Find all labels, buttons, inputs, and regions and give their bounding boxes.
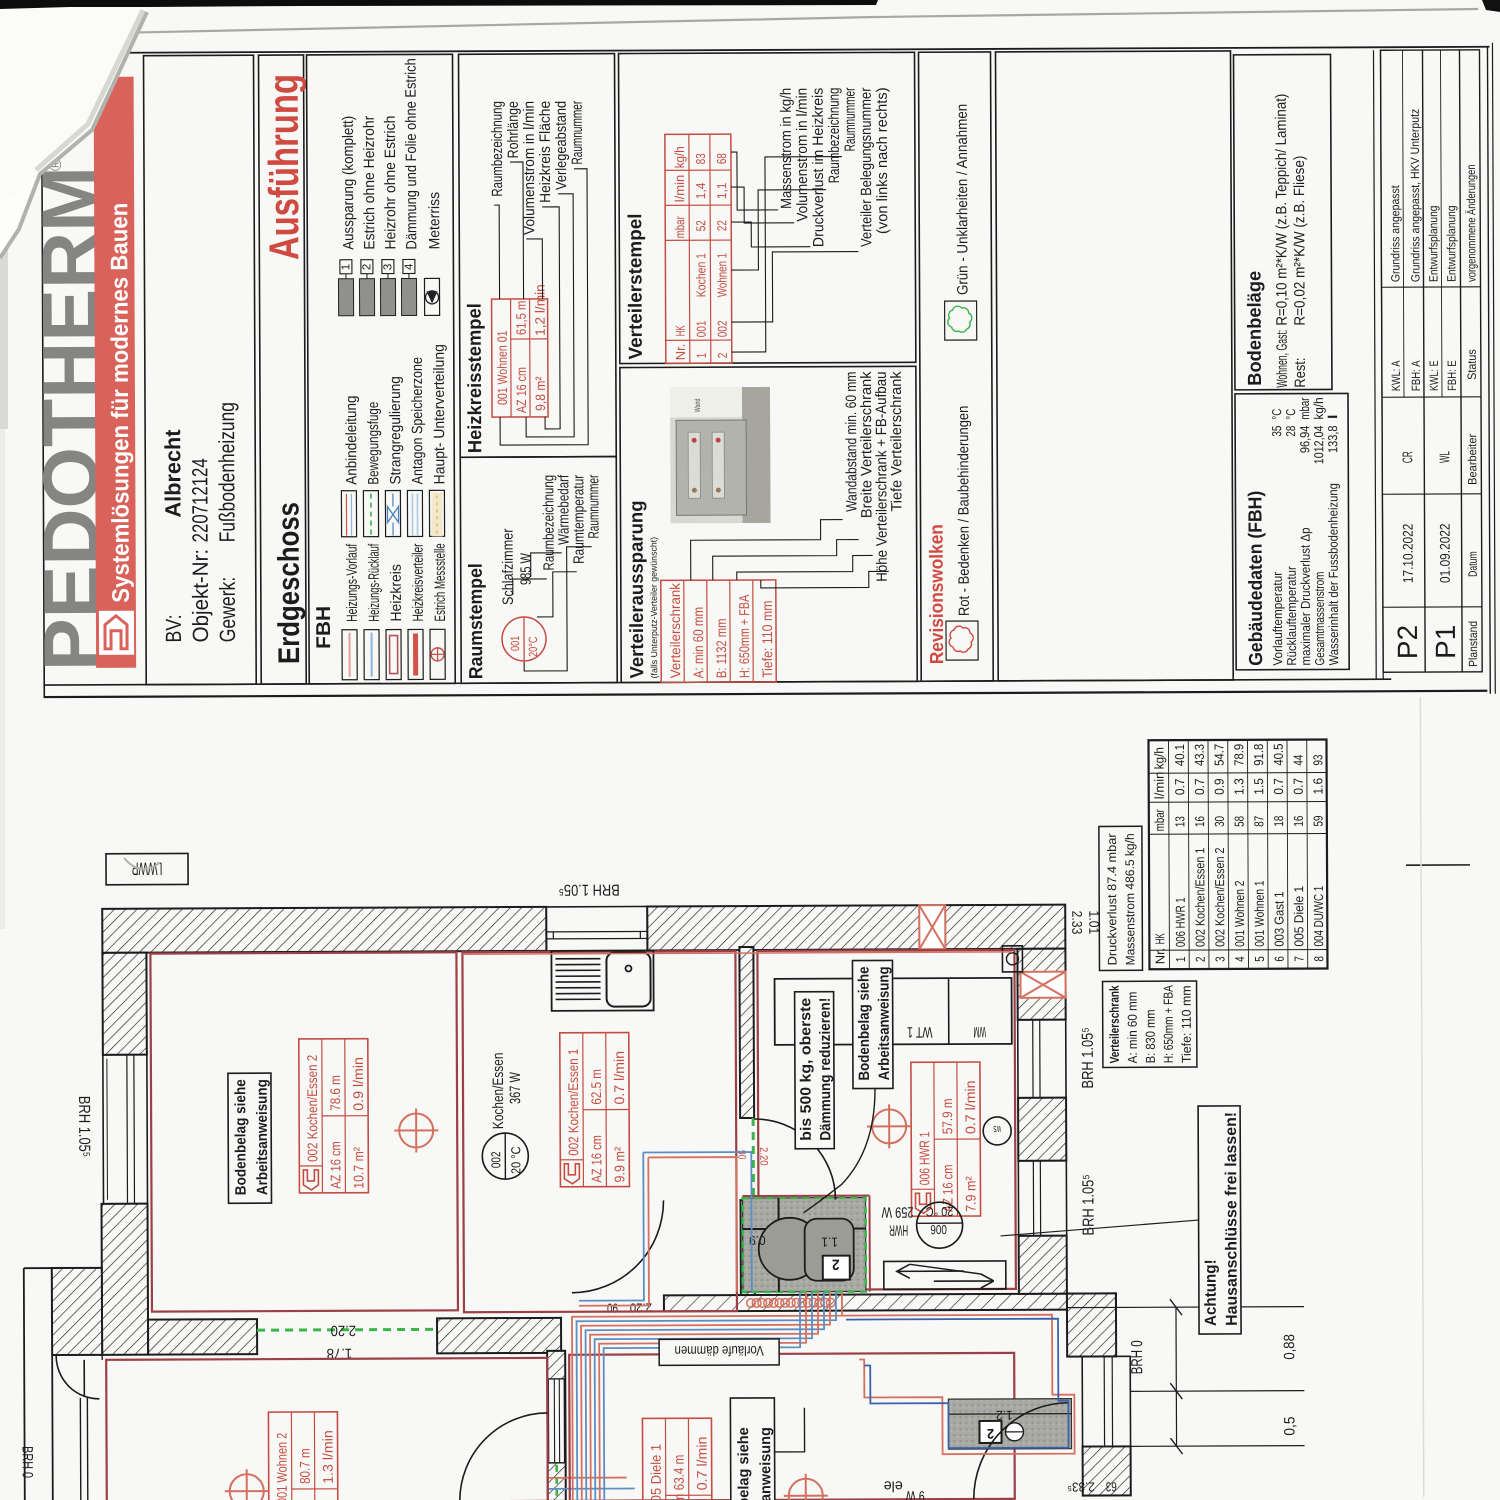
svg-text:28: 28 [1283,426,1298,437]
svg-text:003 Gast 1: 003 Gast 1 [1271,891,1286,946]
svg-text:985 W: 985 W [518,552,535,585]
svg-text:2: 2 [987,1426,994,1442]
svg-text:Meterriss: Meterriss [426,192,443,249]
svg-text:Ausführung: Ausführung [260,74,308,260]
svg-text:16: 16 [1291,816,1306,827]
svg-text:Heizkreis: Heizkreis [388,564,405,621]
svg-text:7.9 m²: 7.9 m² [962,1176,978,1212]
svg-text:001 Wohnen 1: 001 Wohnen 1 [1252,880,1267,946]
svg-text:Anbindeleitung: Anbindeleitung [343,396,360,485]
svg-text:5: 5 [1252,956,1267,962]
svg-text:1: 1 [1173,957,1188,963]
svg-text:maximaler Druckverlust Δp: maximaler Druckverlust Δp [1298,527,1314,665]
svg-text:3: 3 [382,264,394,270]
svg-text:18: 18 [1271,816,1286,827]
svg-text:Arbeitsanweisung: Arbeitsanweisung [254,1079,272,1195]
svg-text:R=0,10 m²*K/W (z.B. Teppich/ L: R=0,10 m²*K/W (z.B. Teppich/ Laminat) [1273,94,1291,326]
svg-text:A: min 60 mm: A: min 60 mm [690,607,706,678]
svg-text:Heizungs-Rücklauf: Heizungs-Rücklauf [366,543,383,622]
svg-text:Vorläufe dämmen: Vorläufe dämmen [675,1343,764,1359]
svg-text:Raumnummer: Raumnummer [569,101,586,165]
svg-text:4: 4 [1232,956,1247,962]
svg-text:Dämmung reduzieren!: Dämmung reduzieren! [817,998,835,1141]
svg-text:Raumnummer: Raumnummer [842,88,859,152]
svg-text:Aussparung (komplett): Aussparung (komplett) [340,116,358,250]
svg-text:80.7 m: 80.7 m [297,1448,313,1484]
svg-text:Heizungs-Vorlauf: Heizungs-Vorlauf [344,543,361,622]
svg-text:(falls Unterputz-Verteiler gew: (falls Unterputz-Verteiler gewünscht) [649,537,660,679]
svg-text:7: 7 [1291,956,1306,962]
svg-text:Albrecht: Albrecht [160,429,185,518]
svg-text:002 Kochen/Essen 1: 002 Kochen/Essen 1 [565,1048,581,1155]
svg-text:Verteilerstempel: Verteilerstempel [625,213,647,359]
svg-text:Schlafzimmer: Schlafzimmer [500,529,517,606]
svg-text:259 W: 259 W [881,1203,914,1220]
svg-text:8: 8 [1311,956,1326,962]
svg-text:62.5 m: 62.5 m [588,1069,604,1105]
svg-text:78.6 m: 78.6 m [327,1075,343,1111]
svg-text:Raumstempel: Raumstempel [466,563,488,679]
svg-text:2.33⁵: 2.33⁵ [1067,1480,1095,1495]
svg-text:43.3: 43.3 [1192,744,1207,766]
svg-text:Heizkreis Fläche: Heizkreis Fläche [537,101,554,203]
svg-text:006 HWR 1: 006 HWR 1 [916,1131,932,1185]
svg-text:B: 830 mm: B: 830 mm [1143,1009,1158,1063]
svg-text:20 °C: 20 °C [508,1146,523,1174]
svg-text:Arbeitsanweisung: Arbeitsanweisung [757,1427,775,1500]
svg-text:006: 006 [930,1222,947,1237]
svg-text:0.7 l/min: 0.7 l/min [611,1051,627,1105]
svg-text:1,4: 1,4 [693,183,708,200]
svg-text:220712124: 220712124 [187,458,212,542]
svg-text:001 Wohnen 2: 001 Wohnen 2 [1232,881,1247,947]
svg-text:Fußbodenheizung: Fußbodenheizung [214,402,240,542]
svg-text:2.33: 2.33 [1069,911,1085,935]
svg-text:1.3 l/min: 1.3 l/min [319,1430,335,1484]
svg-text:002: 002 [715,320,730,337]
svg-text:1.5: 1.5 [1251,778,1266,795]
svg-text:Heizkreisverteiler: Heizkreisverteiler [410,543,427,621]
svg-text:BV:: BV: [161,614,186,642]
svg-text:Entwurfsplanung: Entwurfsplanung [1426,205,1440,282]
svg-text:Gewerk:: Gewerk: [215,577,240,643]
svg-text:Wohnen 1: Wohnen 1 [714,253,729,297]
svg-text:mbar: mbar [1152,809,1167,832]
svg-text:001: 001 [694,321,709,338]
svg-text:CR: CR [1399,451,1415,463]
svg-text:20 °C: 20 °C [926,1204,954,1219]
svg-text:68: 68 [714,153,729,164]
svg-text:vorgenommene Änderungen: vorgenommene Änderungen [1464,165,1479,282]
svg-text:1012,04: 1012,04 [1311,425,1326,464]
svg-text:Objekt-Nr:: Objekt-Nr: [188,549,213,643]
svg-text:AZ 16 cm: AZ 16 cm [327,1141,343,1189]
svg-text:Status: Status [1465,349,1479,380]
svg-text:1: 1 [340,264,352,270]
svg-text:WL: WL [1436,451,1452,463]
svg-text:FBH: E: FBH: E [1445,360,1459,391]
svg-text:HK: HK [673,325,688,336]
svg-text:13: 13 [1172,816,1187,827]
svg-text:BRH 0: BRH 0 [1129,1340,1146,1374]
svg-text:96,94: 96,94 [1297,426,1312,454]
svg-text:Erdgeschoss: Erdgeschoss [272,502,306,664]
svg-text:Rot - Bedenken / Baubehinderun: Rot - Bedenken / Baubehinderungen [955,406,973,616]
svg-text:78.9: 78.9 [1231,744,1246,766]
svg-text:Rest:: Rest: [1292,358,1309,388]
svg-text:WS: WS [993,1124,1001,1134]
svg-text:Verlegeabstand: Verlegeabstand [553,101,570,190]
svg-text:0.7 l/min: 0.7 l/min [962,1080,978,1134]
svg-text:2: 2 [361,264,373,270]
svg-text:1.1: 1.1 [821,1235,838,1250]
svg-text:0.7: 0.7 [1271,778,1286,795]
svg-text:Estrich Messstelle: Estrich Messstelle [432,543,449,621]
svg-text:°C: °C [1283,409,1298,420]
svg-text:AZ 16 cm: AZ 16 cm [671,1494,687,1500]
svg-text:44: 44 [1291,755,1306,766]
svg-text:HWR: HWR [889,1221,908,1238]
svg-text:Wohnen, Gast:: Wohnen, Gast: [1274,330,1291,388]
svg-text:1.3: 1.3 [1231,778,1246,795]
svg-text:002 Kochen/Essen 1: 002 Kochen/Essen 1 [1192,848,1207,947]
svg-text:87: 87 [1251,816,1266,827]
svg-text:Wasserinhalt der Fussbodenheiz: Wasserinhalt der Fussbodenheizung [1325,483,1341,665]
svg-text:Verteilerschrank: Verteilerschrank [667,582,683,678]
svg-text:Arbeitsanweisung: Arbeitsanweisung [875,966,892,1080]
svg-text:0.9: 0.9 [1212,778,1227,795]
svg-text:0.7: 0.7 [1192,778,1207,795]
svg-text:WM: WM [973,1023,986,1040]
svg-text:ele: ele [884,1477,903,1494]
svg-text:002: 002 [488,1151,503,1168]
svg-text:1,1: 1,1 [714,182,729,199]
svg-text:Verteileraussparung: Verteileraussparung [626,500,648,678]
svg-text:Raumbezeichnung: Raumbezeichnung [826,88,843,184]
svg-text:Massenstrom in kg/h: Massenstrom in kg/h [778,88,796,209]
svg-text:Strangregulierung: Strangregulierung [387,376,404,484]
svg-text:63: 63 [1106,1479,1117,1494]
svg-text:l: l [1325,414,1340,420]
svg-text:Heizrohr ohne Estrich: Heizrohr ohne Estrich [382,116,400,250]
svg-text:1,2 l/min: 1,2 l/min [532,284,547,336]
svg-text:°C: °C [1269,409,1284,420]
svg-text:bis 500 kg, oberste: bis 500 kg, oberste [797,998,815,1141]
svg-text:10.7 m²: 10.7 m² [350,1147,366,1189]
svg-text:Tiefe Verteilerschrank: Tiefe Verteilerschrank [888,371,906,512]
svg-text:40.1: 40.1 [1172,744,1187,766]
svg-text:Druckverlust 87.4 mbar: Druckverlust 87.4 mbar [1105,833,1120,965]
svg-text:002 Kochen/Essen 2: 002 Kochen/Essen 2 [1212,848,1227,947]
svg-text:0,88: 0,88 [1281,1334,1298,1360]
svg-text:22: 22 [714,220,729,231]
svg-text:001 Wohnen 2: 001 Wohnen 2 [274,1432,290,1500]
svg-text:16: 16 [1192,816,1207,827]
svg-text:mbar: mbar [672,216,687,239]
svg-text:83: 83 [693,153,708,164]
svg-text:20°C: 20°C [526,636,540,657]
svg-text:9 W: 9 W [905,1487,925,1500]
svg-text:Verteilerschrank: Verteilerschrank [1107,985,1122,1064]
svg-text:Nr.: Nr. [1152,948,1167,965]
svg-text:Grundriss angepasst, HKV Unter: Grundriss angepasst, HKV Unterputz [1408,109,1423,282]
svg-text:Tiefe: 110 mm: Tiefe: 110 mm [759,600,775,677]
svg-text:Hausanschlüsse frei lassen!: Hausanschlüsse frei lassen! [1223,1112,1241,1326]
svg-text:Entwurfsplanung: Entwurfsplanung [1444,205,1458,282]
svg-text:005 Diele 1: 005 Diele 1 [648,1444,664,1500]
svg-text:1: 1 [694,353,709,359]
svg-text:Grundriss angepasst: Grundriss angepasst [1388,185,1402,283]
svg-text:54.7: 54.7 [1212,744,1227,766]
svg-text:Volumenstrom in l/min: Volumenstrom in l/min [794,88,812,222]
svg-text:0.9 l/min: 0.9 l/min [350,1057,366,1111]
svg-text:Druckverlust im Heizkreis: Druckverlust im Heizkreis [810,88,828,247]
svg-text:Antagon Speicherzone: Antagon Speicherzone [409,357,427,485]
svg-text:59: 59 [1311,815,1326,826]
svg-text:A: min 60 mm: A: min 60 mm [1125,992,1140,1064]
svg-text:AZ 16 cm: AZ 16 cm [588,1135,604,1183]
svg-text:B: 1132 mm: B: 1132 mm [713,619,729,679]
svg-text:57.9 m: 57.9 m [939,1098,955,1134]
svg-text:Haupt- Unterverteilung: Haupt- Unterverteilung [431,344,449,484]
svg-text:R=0,02 m²*K/W (z.B. Fliese): R=0,02 m²*K/W (z.B. Fliese) [1291,156,1309,326]
svg-text:Revisionswolken: Revisionswolken [927,524,949,664]
svg-text:Massenstrom 486.5 kg/h: Massenstrom 486.5 kg/h [1123,833,1138,965]
svg-text:2.20: 2.20 [331,1322,357,1339]
svg-text:4: 4 [403,263,415,270]
svg-text:Heizkreisstempel: Heizkreisstempel [465,303,487,453]
svg-text:Dämmung und Folie ohne Estrich: Dämmung und Folie ohne Estrich [403,58,421,249]
svg-text:01.09.2022: 01.09.2022 [1437,523,1453,583]
svg-text:2: 2 [715,353,730,359]
svg-text:9.9 m²: 9.9 m² [611,1147,627,1183]
svg-text:002 Kochen/Essen 2: 002 Kochen/Essen 2 [304,1055,320,1162]
svg-text:30: 30 [1212,816,1227,827]
svg-text:133,8: 133,8 [1325,425,1340,453]
svg-text:61,5 m: 61,5 m [514,301,529,335]
svg-text:Gebäudedaten (FBH): Gebäudedaten (FBH) [1245,491,1267,666]
svg-text:BRH 1.05⁵: BRH 1.05⁵ [558,881,619,898]
svg-text:367 W: 367 W [507,1071,524,1104]
svg-text:6: 6 [1272,956,1287,962]
svg-text:l/min: l/min [672,175,687,203]
svg-text:H: 650mm + FBA: H: 650mm + FBA [1161,985,1176,1063]
svg-text:FBH: FBH [313,606,335,649]
svg-text:001: 001 [508,635,522,651]
svg-text:004 DU/WC 1: 004 DU/WC 1 [1311,886,1326,947]
svg-text:(von links nach rechts): (von links nach rechts) [874,87,892,234]
svg-text:mbar: mbar [1297,397,1312,420]
svg-text:0.7 l/min: 0.7 l/min [694,1437,710,1491]
svg-text:HK: HK [1152,933,1167,944]
svg-text:52: 52 [693,220,708,231]
svg-text:2: 2 [832,1256,840,1273]
svg-text:1.6: 1.6 [1310,778,1325,795]
svg-text:58: 58 [1232,816,1247,827]
svg-text:H: 650mm + FBA: H: 650mm + FBA [736,594,752,678]
svg-text:Estrich ohne Heizrohr: Estrich ohne Heizrohr [361,116,379,250]
svg-text:kg/h: kg/h [672,146,687,168]
svg-text:Kochen/Essen: Kochen/Essen [490,1053,507,1130]
svg-text:63.4 m: 63.4 m [671,1455,687,1491]
svg-text:kg/h: kg/h [1311,397,1326,419]
svg-text:Bearbeiter: Bearbeiter [1465,434,1479,485]
svg-text:BRH 1.05⁵: BRH 1.05⁵ [1080,1174,1097,1235]
svg-text:Planstand: Planstand [1466,621,1480,667]
svg-text:Grün - Unklarheiten / Annahmen: Grün - Unklarheiten / Annahmen [954,104,972,295]
svg-text:Bodenbelag siehe: Bodenbelag siehe [855,966,872,1080]
svg-text:Nr.: Nr. [673,344,688,361]
svg-text:0,5: 0,5 [1281,1417,1298,1436]
svg-text:kg/h: kg/h [1152,747,1167,769]
svg-text:17.10.2022: 17.10.2022 [1400,523,1416,583]
svg-text:Tiefe: 110 mm: Tiefe: 110 mm [1179,985,1194,1063]
svg-text:001 Wohnen 01: 001 Wohnen 01 [495,330,510,405]
svg-text:KWL: A: KWL: A [1389,361,1403,392]
svg-text:Datum: Datum [1466,551,1480,577]
svg-text:Systemlösungen für modernes Ba: Systemlösungen für modernes Bauen [106,203,135,603]
svg-text:FBH: A: FBH: A [1409,360,1423,391]
svg-text:91.8: 91.8 [1251,744,1266,766]
svg-text:P2: P2 [1392,625,1423,659]
svg-text:90: 90 [607,1301,618,1316]
svg-text:Raumnummer: Raumnummer [585,475,602,539]
svg-text:005 Diele 1: 005 Diele 1 [1291,886,1306,947]
svg-text:0.7: 0.7 [1291,778,1306,795]
svg-text:Rohrlänge: Rohrlänge [505,101,522,158]
svg-text:Wand: Wand [693,399,702,413]
svg-text:Achtung!: Achtung! [1203,1259,1220,1326]
svg-text:0.7: 0.7 [1172,778,1187,795]
svg-text:3: 3 [1212,956,1227,962]
svg-text:Bodenbelag siehe: Bodenbelag siehe [735,1427,753,1500]
svg-text:9,8 m²: 9,8 m² [533,376,548,411]
svg-text:35: 35 [1269,426,1284,437]
svg-text:2: 2 [1193,957,1208,963]
svg-text:Bodenbelag siehe: Bodenbelag siehe [232,1079,250,1195]
svg-text:Verteiler Belegungsnummer: Verteiler Belegungsnummer [858,87,876,246]
svg-text:93: 93 [1310,754,1325,765]
svg-text:AZ 16 cm: AZ 16 cm [514,367,529,413]
svg-text:006 HWR 1: 006 HWR 1 [1173,897,1188,947]
svg-text:WT 1: WT 1 [907,1023,933,1040]
svg-text:BRH 0: BRH 0 [19,1446,36,1478]
svg-text:40.5: 40.5 [1271,744,1286,766]
svg-text:KWL: E: KWL: E [1427,360,1441,391]
svg-text:Bodenbeläge: Bodenbeläge [1244,271,1266,386]
svg-text:Kochen 1: Kochen 1 [693,253,708,297]
svg-text:BRH 1.05⁵: BRH 1.05⁵ [1080,1027,1097,1088]
svg-text:Raumbezeichnung: Raumbezeichnung [489,101,506,197]
svg-text:P1: P1 [1430,625,1461,659]
svg-text:Bewegungsfuge: Bewegungsfuge [365,402,382,485]
svg-text:l/min: l/min [1152,772,1167,800]
svg-text:BRH 1.05⁵: BRH 1.05⁵ [75,1096,92,1157]
